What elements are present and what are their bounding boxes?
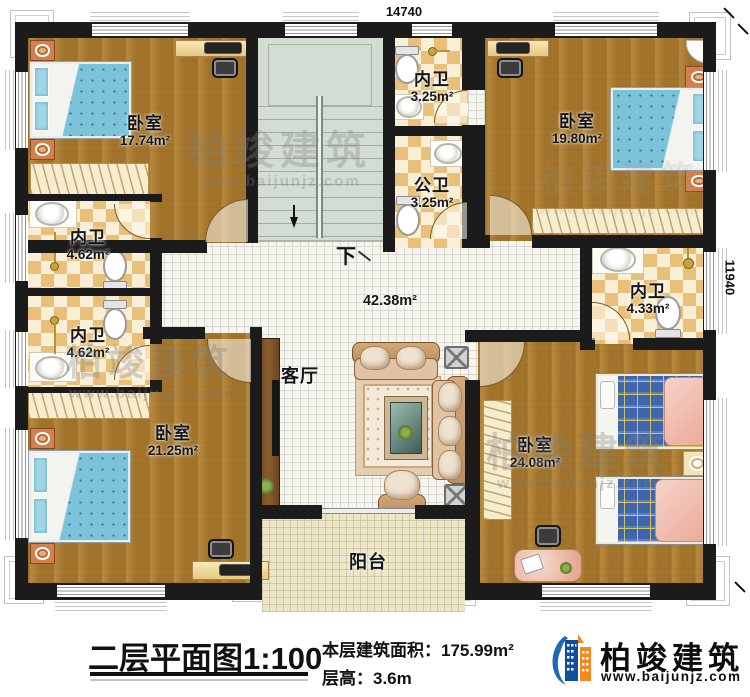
armchair-cushion: [384, 470, 420, 500]
floor-height-text: 层高：3.6m: [322, 664, 412, 689]
room-area: 21.25m²: [118, 443, 228, 458]
dimension-top: 14740: [364, 4, 444, 19]
desk-computer: [205, 43, 241, 53]
window-sill: [90, 12, 190, 22]
sofa-cushion: [360, 346, 390, 370]
wall: [633, 338, 716, 350]
room-area: 3.25m²: [377, 89, 487, 104]
nightstand: [30, 139, 55, 160]
pillow: [34, 67, 49, 97]
blanket: [655, 479, 710, 542]
sofa-cushion: [438, 416, 462, 446]
window: [410, 24, 454, 36]
room-name: 内卫: [33, 326, 143, 345]
desk-computer: [220, 565, 252, 575]
room-name: 内卫: [377, 70, 487, 89]
window-sill: [540, 602, 652, 612]
window-sill: [718, 398, 728, 546]
title-underline-shadow: [90, 679, 308, 681]
nightstand: [30, 428, 55, 449]
nightstand: [30, 543, 55, 564]
window-sill: [5, 428, 15, 540]
room-area: 4.62m²: [33, 247, 143, 262]
office-chair: [208, 539, 234, 559]
window-sill: [5, 213, 15, 283]
window-sill: [718, 70, 728, 172]
pillow: [34, 101, 49, 131]
brand-logo-icon: [548, 631, 594, 689]
towel-knob: [50, 262, 59, 271]
wall: [28, 194, 150, 201]
room-name: 卧室: [118, 424, 228, 443]
table-flowers: [398, 425, 413, 440]
wall: [150, 380, 162, 392]
wall: [383, 22, 395, 252]
sofa-cushion: [438, 450, 462, 480]
room-area: 42.38m²: [335, 294, 445, 309]
room-name: 公卫: [377, 176, 487, 195]
room-label-bedroom-br: 卧室 24.08m²: [480, 436, 590, 470]
room-label-bath-public: 公卫 3.25m²: [377, 176, 487, 210]
flower-pot: [560, 562, 572, 574]
room-name: 卧室: [480, 436, 590, 455]
window-sill: [5, 330, 15, 388]
brand-url: www.baijunjz.com: [601, 669, 742, 684]
room-label-bath-left1: 内卫 4.62m²: [33, 228, 143, 262]
pendant-lamp: [683, 258, 694, 269]
room-label-bath-right: 内卫 4.33m²: [593, 282, 703, 316]
pillow: [600, 381, 615, 409]
room-label-living: 客厅: [245, 367, 355, 386]
room-name: 内卫: [33, 228, 143, 247]
desk-computer: [497, 43, 529, 53]
wardrobe: [28, 392, 150, 419]
dimension-tick: [734, 581, 745, 592]
room-label-bedroom-tl: 卧室 17.74m²: [90, 114, 200, 148]
room-area: 24.08m²: [480, 455, 590, 470]
window-sill: [283, 12, 359, 22]
wardrobe: [30, 163, 149, 195]
pillow: [33, 457, 48, 493]
title-underline: [90, 672, 308, 676]
wall: [150, 194, 162, 202]
window-sill: [55, 602, 167, 612]
balcony-sliding-door: [322, 508, 415, 514]
window: [553, 24, 659, 36]
window: [16, 213, 28, 283]
window: [55, 585, 167, 597]
wall: [143, 327, 205, 339]
living-area-label: 42.38m²: [335, 294, 445, 309]
room-name: 客厅: [245, 367, 355, 386]
tv: [272, 380, 279, 456]
towel-bar: [436, 50, 450, 52]
floor-area-text: 本层建筑面积：175.99m²: [322, 636, 514, 661]
sink: [600, 247, 636, 272]
room-name: 卧室: [522, 112, 632, 131]
wall: [580, 235, 592, 350]
room-label-balcony: 阳台: [313, 553, 423, 572]
window-sill: [5, 70, 15, 150]
window: [704, 250, 716, 332]
window: [90, 24, 190, 36]
window: [16, 70, 28, 150]
room-label-bedroom-bl: 卧室 21.25m²: [118, 424, 228, 458]
room-label-bedroom-tr: 卧室 19.80m²: [522, 112, 632, 146]
sink: [35, 202, 69, 226]
wall: [28, 387, 150, 393]
window: [16, 428, 28, 540]
window: [540, 585, 652, 597]
room-name: 卧室: [90, 114, 200, 133]
wall: [465, 380, 480, 600]
room-area: 4.62m²: [33, 345, 143, 360]
sofa-cushion: [438, 382, 462, 412]
room-label-bath-left2: 内卫 4.62m²: [33, 326, 143, 360]
room-area: 4.33m²: [593, 301, 703, 316]
building-logo-icon: [548, 631, 594, 689]
room-name: 阳台: [313, 553, 423, 572]
window: [283, 24, 359, 36]
room-area: 19.80m²: [522, 131, 632, 146]
window: [16, 330, 28, 388]
dimension-right: 11940: [723, 248, 738, 308]
nightstand: [30, 40, 55, 61]
room-area: 17.74m²: [90, 133, 200, 148]
wall: [465, 235, 490, 248]
wall: [262, 505, 322, 519]
stair-rail: [316, 96, 323, 238]
dimension-tick: [737, 23, 748, 34]
pillow: [600, 483, 615, 509]
wall: [28, 288, 150, 296]
room-label-bath-top: 内卫 3.25m²: [377, 70, 487, 104]
sofa-cushion: [396, 346, 426, 370]
room-area: 3.25m²: [377, 195, 487, 210]
stair-arrow-head: [290, 217, 298, 228]
side-table: [444, 346, 469, 369]
pillow: [33, 498, 48, 534]
window: [704, 70, 716, 172]
window-sill: [553, 12, 659, 22]
sink: [434, 143, 462, 164]
window: [704, 398, 716, 546]
office-chair: [497, 58, 523, 78]
wall: [465, 330, 592, 342]
wall: [532, 235, 716, 248]
wall: [388, 126, 468, 136]
floorplan-canvas: 卧室 17.74m² 卧室 19.80m² 卧室 21.25m² 卧室 24.0…: [0, 0, 750, 697]
office-chair: [212, 58, 238, 78]
wardrobe: [532, 208, 714, 234]
stairs-down-label: 下: [336, 240, 356, 269]
office-chair: [535, 525, 561, 547]
room-name: 内卫: [593, 282, 703, 301]
